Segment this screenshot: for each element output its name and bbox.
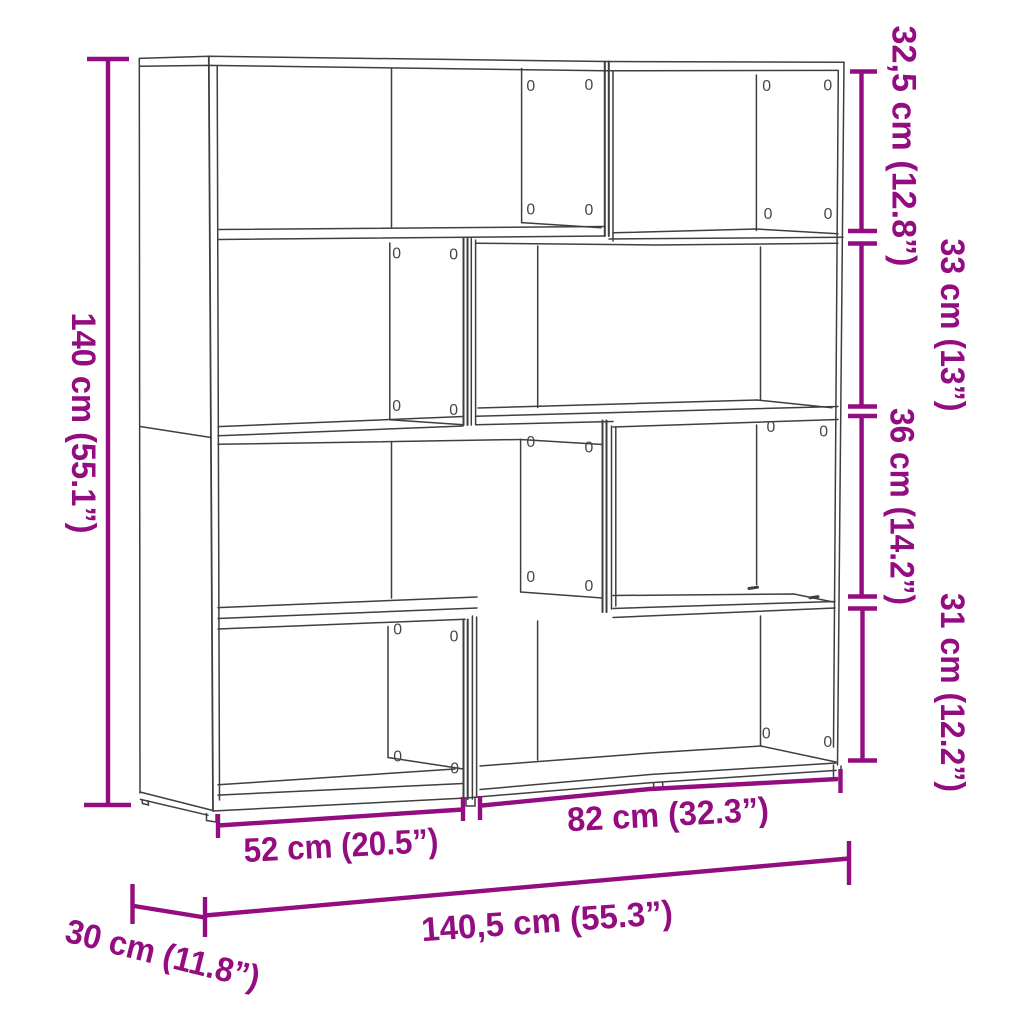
svg-text:0: 0	[824, 206, 833, 223]
svg-text:0: 0	[526, 202, 535, 219]
svg-text:36 cm (14.2”): 36 cm (14.2”)	[883, 408, 921, 605]
svg-text:0: 0	[526, 569, 535, 586]
svg-text:0: 0	[823, 734, 832, 751]
svg-text:0: 0	[767, 419, 776, 436]
svg-text:0: 0	[393, 749, 402, 766]
svg-text:33 cm (13”): 33 cm (13”)	[933, 239, 971, 412]
svg-text:0: 0	[393, 622, 402, 639]
svg-text:0: 0	[526, 78, 535, 95]
svg-text:31 cm (12.2”): 31 cm (12.2”)	[933, 593, 971, 792]
svg-text:0: 0	[585, 440, 594, 457]
svg-text:0: 0	[585, 202, 594, 219]
svg-text:0: 0	[764, 206, 773, 223]
svg-text:140 cm (55.1”): 140 cm (55.1”)	[64, 313, 102, 534]
svg-text:0: 0	[823, 78, 832, 95]
svg-text:0: 0	[392, 398, 401, 415]
svg-text:0: 0	[449, 402, 458, 419]
svg-text:0: 0	[762, 78, 771, 95]
svg-text:0: 0	[526, 434, 535, 451]
svg-text:0: 0	[585, 77, 594, 94]
svg-text:0: 0	[585, 578, 594, 595]
svg-text:0: 0	[450, 629, 459, 646]
svg-text:32,5 cm (12.8”): 32,5 cm (12.8”)	[884, 26, 922, 267]
svg-text:0: 0	[449, 247, 458, 264]
svg-text:0: 0	[762, 726, 771, 743]
svg-text:0: 0	[392, 245, 401, 262]
svg-text:0: 0	[819, 424, 828, 441]
svg-text:0: 0	[450, 761, 459, 778]
